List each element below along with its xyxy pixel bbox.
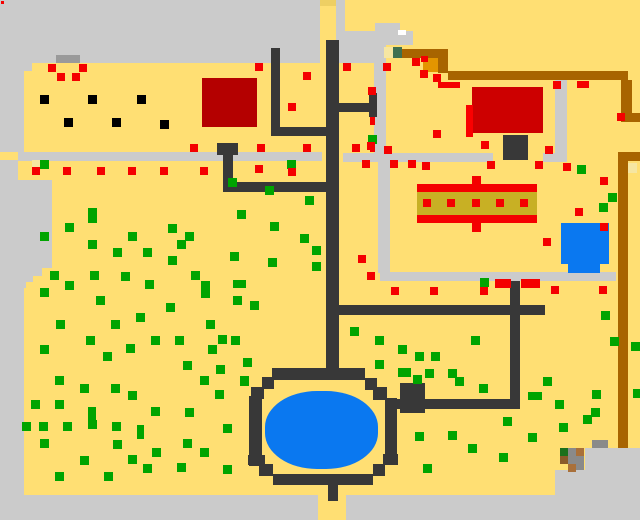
flower-dot [575,208,583,216]
brown-stub-lower [618,152,640,161]
brown-path-v3 [618,161,628,448]
tree-dot [80,456,89,465]
rock-dot [88,95,97,104]
tree-dot [425,369,434,378]
flower-dot [255,165,263,173]
tree-dot [413,375,422,384]
flower-dot [57,73,65,81]
tree-dot [128,232,137,241]
tree-dot [185,232,194,241]
flower-dot [553,81,561,89]
tree-dot [96,296,105,305]
flower-dot [600,223,608,231]
tree-dot [375,360,384,369]
flower-dot [63,167,71,175]
tree-dot [201,281,210,298]
tree-dot [300,234,309,243]
tree-dot [183,439,192,448]
tree-dot [200,376,209,385]
flower-dot [600,177,608,185]
left-border-8 [0,288,24,495]
rock-dot [64,118,73,127]
tree-dot [177,463,186,472]
tree-dot [55,472,64,481]
flower-dot [551,286,559,294]
flower-dot [368,87,376,95]
tree-dot [240,377,249,386]
bottom-strip-right [346,495,640,520]
flower-dot [412,58,420,66]
tree-dot [65,223,74,232]
yellow-col-tip [320,0,336,6]
tree-dot [88,208,97,223]
stall-nub-bottom [472,223,481,232]
tree-dot [237,210,246,219]
tree-dot [312,246,321,255]
tree-dot [168,224,177,233]
tree-dot [113,248,122,257]
flower-dot [303,72,311,80]
tree-dot [265,186,274,195]
flower-dot [421,56,428,62]
tree-dot [599,203,608,212]
tree-dot [601,311,610,320]
flower-dot [97,167,105,175]
tree-dot [121,272,130,281]
tree-dot [39,422,48,431]
tree-dot [40,232,49,241]
tree-dot [233,296,242,305]
flower-dot [160,167,168,175]
tree-dot [228,178,237,187]
tree-dot [191,271,200,280]
tree-dot [86,336,95,345]
flower-dot [72,73,80,81]
flower-dot [384,146,392,154]
tree-dot [177,240,186,249]
tree-dot [88,240,97,249]
tree-dot [50,271,59,280]
flower-dot [362,160,370,168]
tree-dot [415,352,424,361]
sidewalk-v-east [555,80,567,153]
tree-dot [577,165,586,174]
dark-green-square [393,47,402,58]
tree-dot [111,384,120,393]
pond-water [265,391,378,469]
pond-stem-bottom [328,485,338,501]
tree-dot [243,358,252,367]
tree-dot [375,336,384,345]
tree-dot [56,320,65,329]
brown-path-h2 [448,71,628,80]
tree-dot [233,280,246,288]
flower-dot [367,272,375,280]
tree-dot [88,420,97,429]
brown-path-v1 [438,56,448,73]
tree-dot [208,345,217,354]
flower-dot [343,63,351,71]
tree-dot [136,313,145,322]
hut-brown-1 [576,448,584,456]
flower-dot [543,238,551,246]
flower-dot [391,287,399,295]
flower-dot [545,146,553,154]
tree-dot [63,422,72,431]
flower-dot [433,130,441,138]
pond-ring-bl2 [259,464,273,476]
road-h-185 [223,182,328,192]
well-top [217,143,238,155]
flower-dot [303,144,311,152]
tree-dot [583,415,592,424]
tree-dot [40,345,49,354]
road-left-horizontal [271,127,328,136]
tree-dot [480,278,489,287]
white-notch [398,30,406,35]
tree-dot [398,368,407,377]
tree-dot [528,392,542,400]
corner-red-dot [1,1,4,4]
flower-dot [447,199,455,207]
tree-dot [543,377,552,386]
tree-dot [231,336,240,345]
tree-dot [448,431,457,440]
flower-dot [352,144,360,152]
tree-dot [218,335,227,344]
tree-dot [592,390,601,399]
road-building-v [369,93,377,117]
tree-dot [350,327,359,336]
flower-dot [487,161,495,169]
tree-dot [128,455,137,464]
tree-dot [40,439,49,448]
pond-ring-br1 [373,464,385,476]
flower-dot [563,163,571,171]
tree-dot [151,336,160,345]
pixel-village-map[interactable] [0,0,640,520]
flower-dot [370,117,375,125]
flower-dot [370,143,375,152]
flower-dot [438,82,460,88]
flower-dot [32,167,40,175]
hut-brown-2 [560,456,568,464]
tree-dot [151,407,160,416]
tree-dot [215,390,224,399]
tree-dot [312,262,321,271]
bottom-strip-left [0,495,318,520]
flower-dot [128,167,136,175]
tree-dot [143,248,152,257]
flower-dot [190,144,198,152]
tree-dot [168,256,177,265]
pond-ring-tr2 [373,387,387,400]
tree-dot [112,422,121,431]
flower-dot [390,160,398,168]
tree-dot [250,301,259,310]
tree-dot [479,384,488,393]
flower-dot [288,103,296,111]
tree-dot [88,407,96,420]
tree-dot [223,465,232,474]
tree-dot [55,400,64,409]
tree-dot [103,352,112,361]
tree-dot [65,281,74,290]
flower-dot [599,286,607,294]
sidewalk-h-left [18,152,322,161]
rock-dot [40,95,49,104]
tree-dot [145,280,154,289]
flower-dot [200,167,208,175]
tree-dot [591,408,600,417]
tree-dot [468,444,477,453]
tree-dot [128,391,137,400]
stall-top-bar [417,184,537,192]
tree-dot [80,384,89,393]
tree-dot [503,417,512,426]
tree-dot [55,376,64,385]
tree-dot [455,377,464,386]
tree-dot [230,252,239,261]
flower-dot [420,70,428,78]
tree-dot [31,400,40,409]
flower-dot [472,199,480,207]
tree-dot [471,336,480,345]
building-right [472,87,543,133]
flower-dot [257,144,265,152]
tree-dot [104,472,113,481]
brown-path-v2 [621,80,632,113]
chimney [503,135,528,160]
tree-dot [113,440,122,449]
flower-dot [255,63,263,71]
road-left-vertical [271,48,280,135]
tree-dot [270,222,279,231]
tree-dot [90,271,99,280]
stall-nub-top [472,176,481,184]
building-right-sliver [466,105,473,137]
flower-dot [496,199,504,207]
flower-dot [481,141,489,149]
hut-green [560,448,568,456]
flower-dot [520,199,528,207]
tree-dot [22,422,31,431]
flower-dot [430,287,438,295]
tree-dot [555,400,564,409]
tree-dot [415,432,424,441]
tree-dot [137,425,144,439]
flower-dot [423,199,431,207]
flower-dot [48,64,56,72]
road-right-vertical [510,281,520,409]
tree-dot [631,342,640,351]
tree-dot [398,345,407,354]
sidewalk-v-south [378,162,390,273]
flower-dot [480,287,488,295]
left-border-2 [0,71,24,152]
flower-dot [521,279,540,288]
flower-dot [577,81,589,88]
pond-ring-bottom [273,474,373,485]
pale-patch-1 [384,47,393,58]
tree-dot [633,389,640,398]
tree-dot [200,448,209,457]
flower-dot [383,63,391,71]
pale-patch-2 [628,163,637,173]
flower-dot [495,279,511,288]
tree-dot [183,361,192,370]
tree-dot [111,320,120,329]
tree-dot [610,337,619,346]
bottom-right-gray-lower [555,470,640,495]
tree-dot [499,453,508,462]
tree-dot [126,344,135,353]
tree-dot [431,352,440,361]
tree-dot [216,365,225,374]
tree-dot [559,423,568,432]
pond-ring-top [272,368,365,380]
tree-dot [423,464,432,473]
road-main-vertical [326,40,339,368]
tree-dot [152,448,161,457]
tree-dot [528,433,537,442]
building-left [202,78,257,127]
left-border-4 [0,180,52,268]
tree-dot [223,424,232,433]
tree-dot [143,464,152,473]
flower-dot [433,74,441,82]
gray-pocket-c [345,31,375,63]
left-border-1 [0,63,32,71]
tree-dot [608,193,617,202]
tree-dot [268,258,277,267]
flower-dot [288,168,296,176]
sidewalk-h-right [543,153,567,162]
small-pond-notch [568,264,600,273]
hut-brown-3 [568,464,576,472]
rock-dot [160,120,169,129]
flower-dot [79,64,87,72]
flower-dot [358,255,366,263]
flower-dot [535,161,543,169]
stall-bottom-bar [417,215,537,223]
pond-junction [400,383,425,413]
flower-dot [617,113,625,121]
left-border-3 [0,160,18,180]
flower-dot [408,160,416,168]
tree-dot [166,303,175,312]
hut-gray-bar [592,440,608,448]
tree-dot [40,288,49,297]
tree-dot [305,196,314,205]
rock-dot [137,95,146,104]
pond-ring-right [385,398,397,456]
pale-patch-3 [32,160,40,167]
flower-dot [422,162,430,170]
tree-dot [175,336,184,345]
tree-dot [185,408,194,417]
dark-bar-top [56,55,80,63]
tree-dot [206,320,215,329]
left-border-5 [0,268,42,276]
gray-pocket-a [375,23,400,31]
tree-dot [40,160,49,169]
rock-dot [112,118,121,127]
